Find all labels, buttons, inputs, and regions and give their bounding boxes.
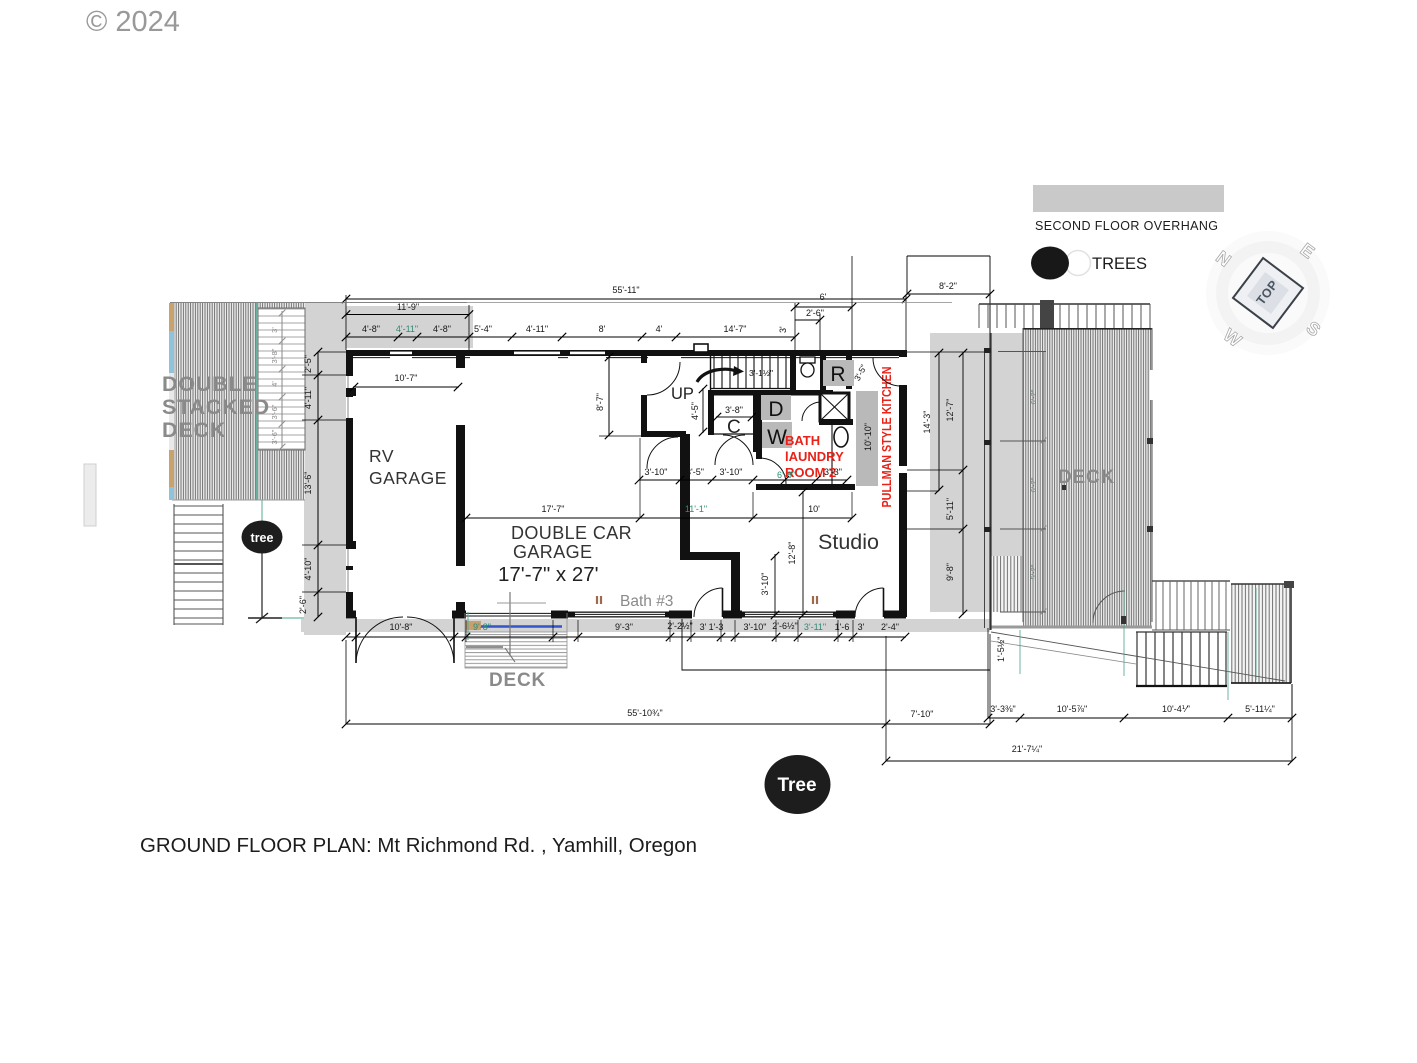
svg-text:3'-11": 3'-11" [804, 622, 826, 632]
svg-text:11'-9": 11'-9" [397, 302, 419, 312]
svg-text:9'-8": 9'-8" [945, 563, 955, 581]
svg-text:GARAGE: GARAGE [369, 468, 447, 488]
svg-text:GROUND FLOOR PLAN: Mt Richmond: GROUND FLOOR PLAN: Mt Richmond Rd. , Yam… [140, 834, 697, 857]
svg-text:9'-8": 9'-8" [473, 622, 491, 632]
svg-text:3'-3": 3'-3" [824, 467, 842, 477]
svg-text:5'-2": 5'-2" [1029, 564, 1038, 579]
svg-text:21'-7¼": 21'-7¼" [1012, 744, 1042, 754]
svg-text:10'-4⅟": 10'-4⅟" [1162, 704, 1190, 714]
svg-text:RV: RV [369, 446, 394, 466]
svg-text:4'-8": 4'-8" [362, 324, 380, 334]
svg-text:10'-10": 10'-10" [863, 423, 873, 451]
svg-text:4'-10": 4'-10" [303, 558, 313, 581]
svg-text:1'-5½": 1'-5½" [996, 637, 1006, 662]
svg-text:5'-11": 5'-11" [945, 498, 955, 520]
svg-text:C: C [727, 417, 741, 438]
svg-text:DOUBLE: DOUBLE [162, 372, 258, 396]
svg-text:3'-3⅜": 3'-3⅜" [990, 704, 1015, 714]
svg-text:2'-2½": 2'-2½" [667, 621, 692, 631]
svg-text:3': 3' [778, 326, 788, 333]
svg-text:2'-6": 2'-6" [806, 308, 824, 318]
svg-text:© 2024: © 2024 [86, 6, 180, 38]
svg-text:9'-3": 9'-3" [615, 622, 633, 632]
svg-text:4'-11": 4'-11" [303, 387, 313, 409]
svg-text:11'-1": 11'-1" [685, 504, 707, 514]
svg-text:4'-11": 4'-11" [396, 324, 418, 334]
svg-text:Studio: Studio [818, 530, 879, 554]
svg-text:1'-6: 1'-6 [835, 622, 850, 632]
svg-text:4'-5": 4'-5" [690, 402, 700, 420]
svg-text:D: D [768, 398, 783, 421]
svg-text:lAUNDRY: lAUNDRY [785, 449, 844, 464]
svg-text:2'-6": 2'-6" [298, 596, 308, 614]
svg-text:55'-10¾": 55'-10¾" [627, 708, 662, 718]
svg-text:7'-10": 7'-10" [911, 709, 934, 719]
svg-text:3'-8": 3'-8" [725, 405, 743, 415]
svg-text:UP: UP [671, 385, 694, 403]
svg-text:6'-8": 6'-8" [777, 470, 795, 480]
svg-text:1'-3: 1'-3 [709, 622, 724, 632]
svg-text:8': 8' [599, 324, 606, 334]
svg-text:6'-2": 6'-2" [1029, 477, 1038, 492]
svg-text:PULLMAN STYLE KITCHEN: PULLMAN STYLE KITCHEN [880, 367, 894, 508]
svg-text:3'-10": 3'-10" [760, 573, 770, 596]
svg-text:Bath #3: Bath #3 [620, 593, 673, 610]
svg-text:17'-7": 17'-7" [542, 504, 565, 514]
svg-text:4': 4' [270, 381, 279, 387]
svg-text:4': 4' [656, 324, 663, 334]
svg-text:3'-8": 3'-8" [270, 348, 279, 363]
svg-text:4'-8": 4'-8" [433, 324, 451, 334]
svg-text:2'-6½": 2'-6½" [772, 621, 797, 631]
svg-text:4'-11": 4'-11" [526, 324, 548, 334]
svg-text:BATH: BATH [785, 433, 820, 448]
svg-text:3'-6": 3'-6" [270, 429, 279, 444]
svg-text:6': 6' [820, 292, 827, 302]
svg-text:8'-7": 8'-7" [595, 393, 605, 411]
svg-text:3': 3' [858, 622, 865, 632]
svg-text:TREES: TREES [1092, 255, 1147, 273]
svg-text:3'-10": 3'-10" [720, 467, 743, 477]
svg-text:10'-8": 10'-8" [390, 622, 413, 632]
svg-text:55'-11": 55'-11" [612, 285, 639, 295]
svg-text:10': 10' [808, 504, 820, 514]
svg-text:10'-7": 10'-7" [395, 373, 418, 383]
svg-text:6'-2": 6'-2" [1029, 389, 1038, 404]
svg-text:13'-6": 13'-6" [303, 472, 313, 495]
svg-text:3'-1½": 3'-1½" [749, 368, 773, 378]
svg-text:3'-10": 3'-10" [744, 622, 767, 632]
svg-text:DECK: DECK [162, 418, 226, 442]
svg-text:3': 3' [700, 622, 707, 632]
svg-text:10'-5⅞": 10'-5⅞" [1057, 704, 1087, 714]
svg-text:14'-3": 14'-3" [922, 411, 932, 434]
svg-text:3': 3' [270, 327, 279, 333]
svg-text:SECOND FLOOR OVERHANG: SECOND FLOOR OVERHANG [1035, 219, 1218, 233]
svg-text:2'-4": 2'-4" [881, 622, 899, 632]
svg-text:5'-4": 5'-4" [474, 324, 492, 334]
svg-text:3'-6": 3'-6" [270, 404, 279, 419]
svg-text:Tree: Tree [777, 775, 816, 796]
svg-text:5'-11¼": 5'-11¼" [1245, 704, 1275, 714]
svg-text:17'-7" x 27': 17'-7" x 27' [498, 563, 599, 586]
svg-text:3'-10": 3'-10" [645, 467, 668, 477]
svg-text:12'-7": 12'-7" [945, 399, 955, 422]
svg-text:3'-5": 3'-5" [686, 467, 704, 477]
svg-text:R: R [830, 363, 845, 386]
svg-text:DOUBLE CAR: DOUBLE CAR [511, 523, 632, 543]
svg-text:2'-5": 2'-5" [303, 355, 313, 373]
svg-text:8'-2": 8'-2" [939, 281, 957, 291]
svg-text:14'-7": 14'-7" [724, 324, 747, 334]
svg-text:STACKED: STACKED [162, 395, 270, 419]
svg-text:DECK: DECK [1058, 467, 1115, 488]
svg-text:tree: tree [251, 531, 274, 545]
svg-text:GARAGE: GARAGE [513, 542, 592, 562]
svg-text:DECK: DECK [489, 670, 546, 691]
svg-text:12'-8": 12'-8" [787, 542, 797, 565]
